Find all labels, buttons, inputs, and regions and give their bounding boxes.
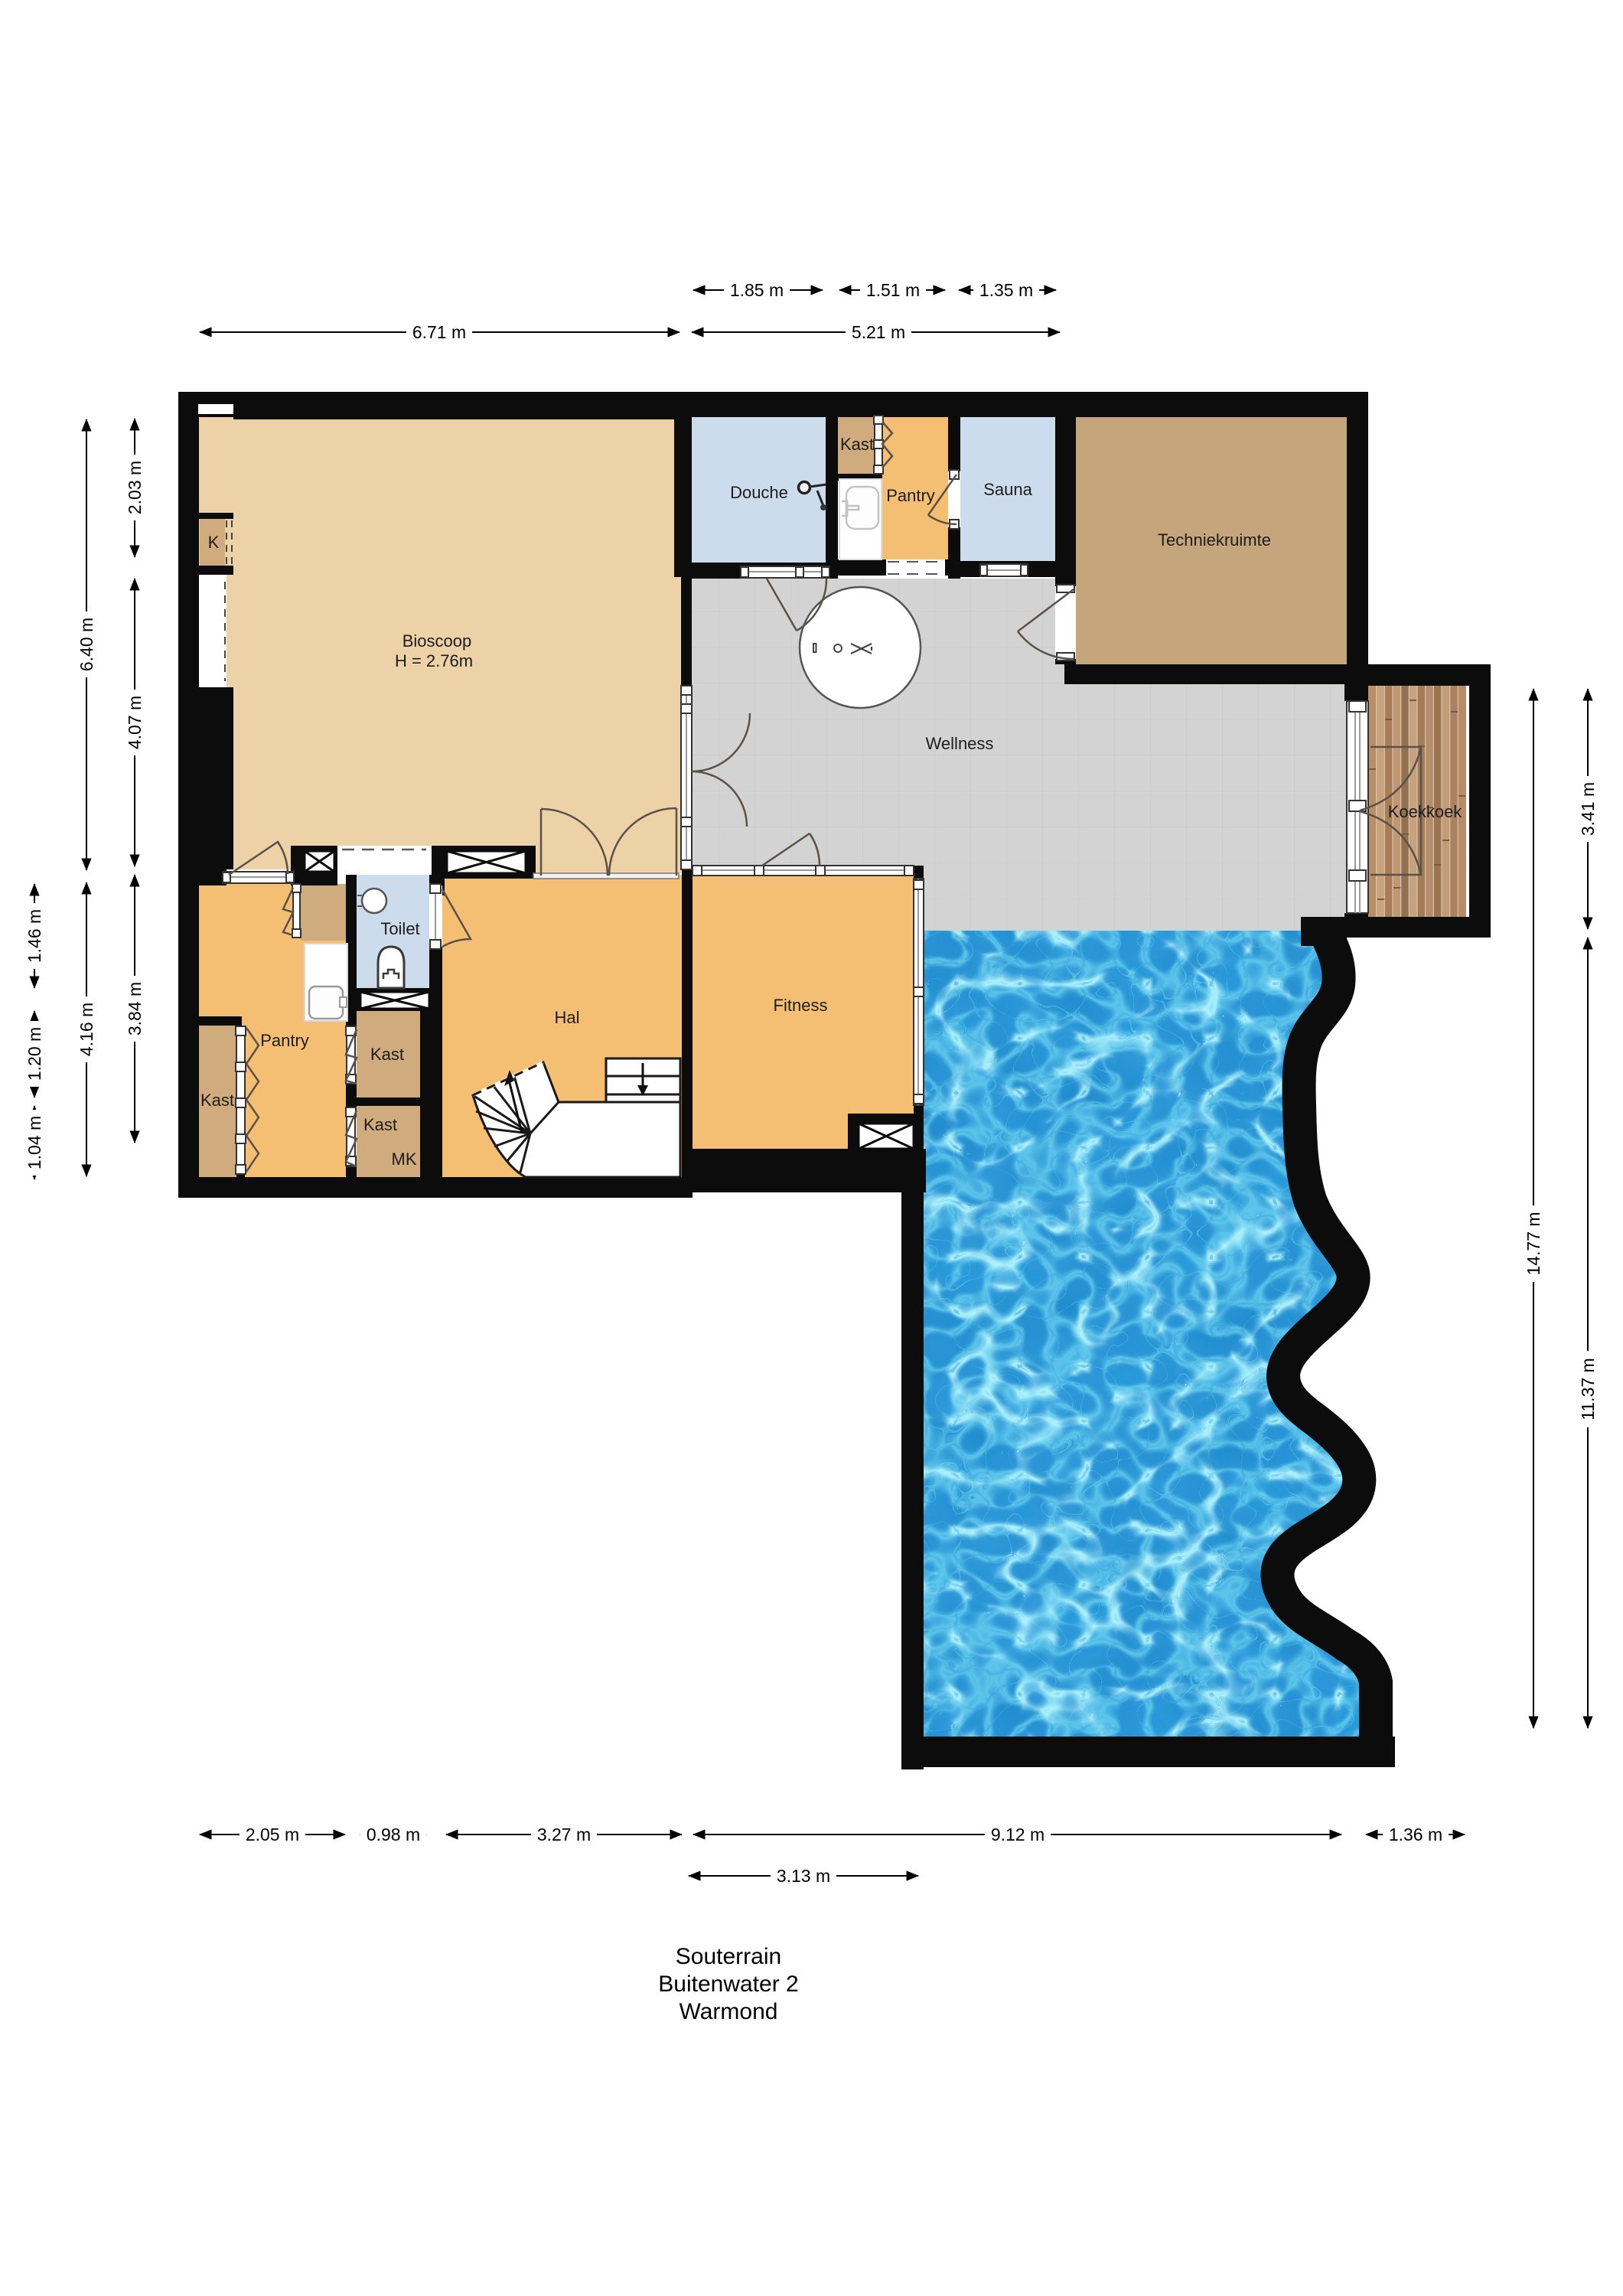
- svg-text:Fitness: Fitness: [774, 996, 828, 1015]
- svg-text:Hal: Hal: [554, 1008, 579, 1027]
- svg-text:1.51 m: 1.51 m: [866, 280, 920, 300]
- svg-text:Bioscoop: Bioscoop: [402, 631, 472, 651]
- svg-text:4.07 m: 4.07 m: [125, 696, 145, 749]
- svg-text:Kast: Kast: [370, 1045, 404, 1064]
- svg-text:Wellness: Wellness: [926, 734, 994, 753]
- svg-text:1.46 m: 1.46 m: [24, 909, 44, 963]
- svg-text:Kast: Kast: [200, 1091, 234, 1110]
- svg-text:Kast: Kast: [840, 435, 874, 454]
- svg-text:1.04 m: 1.04 m: [24, 1116, 44, 1169]
- svg-text:2.05 m: 2.05 m: [246, 1825, 299, 1844]
- svg-text:1.85 m: 1.85 m: [730, 280, 784, 300]
- svg-text:0.98 m: 0.98 m: [367, 1825, 420, 1844]
- svg-text:6.71 m: 6.71 m: [412, 322, 466, 342]
- svg-text:3.27 m: 3.27 m: [537, 1825, 591, 1844]
- svg-text:3.41 m: 3.41 m: [1578, 782, 1598, 836]
- svg-text:6.40 m: 6.40 m: [77, 618, 96, 671]
- svg-text:Sauna: Sauna: [983, 480, 1032, 499]
- svg-text:Techniekruimte: Techniekruimte: [1158, 530, 1271, 550]
- svg-text:MK: MK: [392, 1150, 417, 1169]
- svg-text:2.03 m: 2.03 m: [125, 461, 145, 514]
- svg-text:9.12 m: 9.12 m: [991, 1825, 1045, 1844]
- svg-text:Douche: Douche: [730, 483, 788, 502]
- svg-text:K: K: [208, 533, 220, 552]
- svg-text:11.37 m: 11.37 m: [1578, 1358, 1598, 1420]
- svg-text:14.77 m: 14.77 m: [1524, 1212, 1543, 1275]
- svg-text:5.21 m: 5.21 m: [852, 322, 905, 342]
- svg-text:H = 2.76m: H = 2.76m: [395, 651, 473, 670]
- svg-text:Toilet: Toilet: [380, 919, 419, 938]
- svg-text:Pantry: Pantry: [260, 1031, 309, 1050]
- svg-text:Koekkoek: Koekkoek: [1388, 802, 1463, 821]
- svg-text:Buitenwater 2: Buitenwater 2: [658, 1971, 798, 1997]
- svg-text:1.35 m: 1.35 m: [979, 280, 1033, 300]
- svg-text:3.84 m: 3.84 m: [125, 982, 145, 1035]
- svg-text:1.20 m: 1.20 m: [24, 1027, 44, 1081]
- svg-text:3.13 m: 3.13 m: [777, 1866, 830, 1886]
- svg-text:Warmond: Warmond: [680, 1999, 778, 2024]
- svg-text:4.16 m: 4.16 m: [77, 1003, 96, 1056]
- svg-text:Pantry: Pantry: [886, 486, 935, 505]
- svg-text:1.36 m: 1.36 m: [1389, 1825, 1442, 1844]
- svg-text:Kast: Kast: [363, 1115, 397, 1134]
- svg-text:Souterrain: Souterrain: [676, 1944, 781, 1969]
